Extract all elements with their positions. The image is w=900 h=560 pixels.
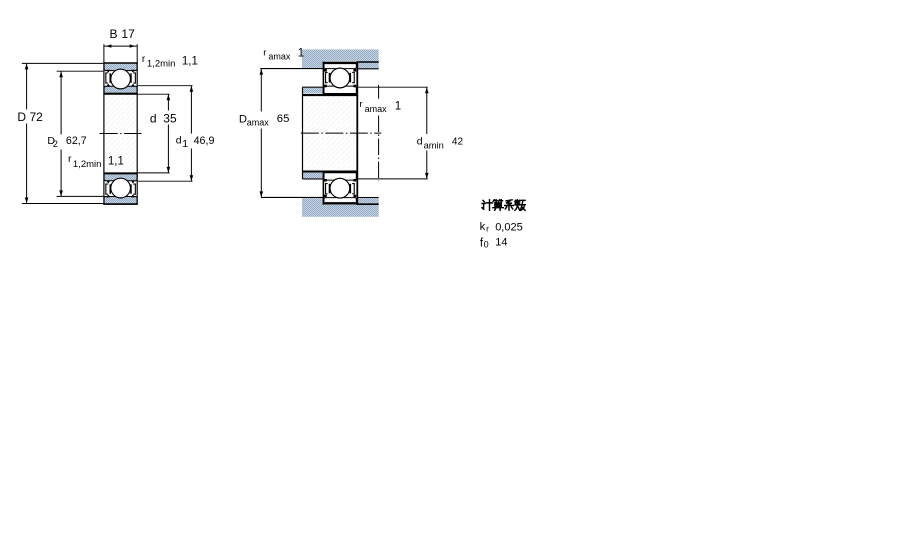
svg-text:42: 42	[452, 137, 464, 148]
svg-text:1: 1	[298, 47, 304, 59]
svg-text:72: 72	[30, 110, 44, 124]
svg-text:amax: amax	[268, 52, 291, 62]
svg-text:d: d	[417, 136, 423, 148]
svg-text:1: 1	[395, 100, 401, 112]
svg-text:d: d	[176, 134, 182, 146]
svg-text:1,2min: 1,2min	[147, 59, 176, 70]
svg-text:r: r	[486, 224, 489, 234]
svg-text:65: 65	[277, 113, 290, 125]
svg-text:r: r	[68, 153, 72, 165]
svg-text:0: 0	[484, 240, 489, 250]
svg-text:1,1: 1,1	[182, 55, 198, 67]
svg-text:r: r	[263, 47, 266, 58]
svg-text:k: k	[480, 221, 486, 233]
svg-text:14: 14	[495, 237, 507, 249]
svg-text:1,2min: 1,2min	[73, 159, 102, 170]
svg-text:1: 1	[182, 138, 188, 150]
svg-text:amax: amax	[365, 104, 388, 114]
svg-text:r: r	[359, 99, 362, 110]
svg-text:D: D	[17, 110, 26, 124]
svg-text:17: 17	[121, 27, 135, 41]
svg-text:B: B	[110, 27, 118, 41]
svg-text:amin: amin	[424, 140, 444, 150]
svg-text:amax: amax	[247, 118, 270, 128]
svg-text:0,025: 0,025	[495, 221, 523, 233]
svg-text:2: 2	[53, 139, 58, 149]
svg-text:r: r	[142, 54, 146, 65]
svg-text:35: 35	[163, 111, 177, 125]
svg-text:1,1: 1,1	[108, 155, 124, 167]
svg-text:d: d	[150, 112, 157, 126]
svg-text:46,9: 46,9	[194, 135, 215, 147]
svg-text:62,7: 62,7	[66, 135, 87, 147]
